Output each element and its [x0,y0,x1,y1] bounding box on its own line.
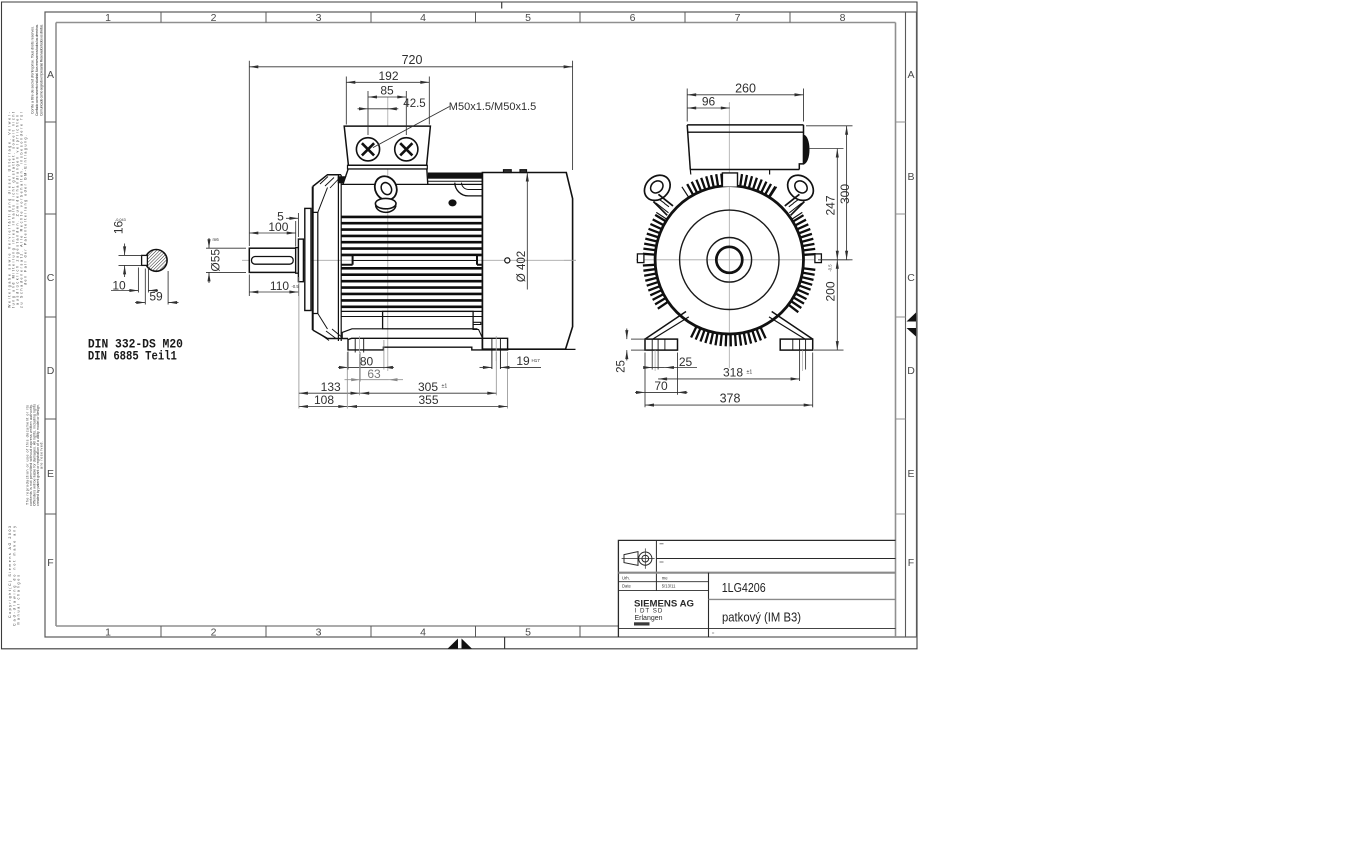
svg-text:59: 59 [149,289,163,303]
svg-text:70: 70 [654,379,668,393]
svg-text:16: 16 [111,221,125,235]
svg-text:300: 300 [838,184,852,204]
svg-text:1: 1 [105,12,111,24]
svg-text:DIN 6885 Teil1: DIN 6885 Teil1 [88,348,177,363]
svg-text:720: 720 [402,53,423,67]
svg-text:1: 1 [105,627,111,639]
svg-text:m6: m6 [213,237,220,242]
svg-text:Urh.: Urh. [622,575,630,580]
svg-text:Date: Date [622,584,632,589]
svg-text:-0.5: -0.5 [827,264,832,272]
svg-text:A: A [47,69,54,81]
svg-text:C: C [47,272,55,284]
svg-text:42.5: 42.5 [403,98,425,110]
svg-text:4: 4 [420,627,426,639]
svg-text:19: 19 [516,354,530,368]
svg-text:±1: ±1 [442,384,448,390]
svg-text:96: 96 [702,95,716,109]
svg-text:H17: H17 [532,358,541,363]
svg-text:25: 25 [679,355,693,369]
svg-text:133: 133 [321,380,341,394]
svg-text:3: 3 [316,12,322,24]
svg-text:Ø 402: Ø 402 [516,251,528,282]
svg-text:F: F [908,557,914,569]
svg-text:4: 4 [420,12,426,24]
svg-text:±1: ±1 [747,369,753,375]
svg-text:D: D [907,365,915,377]
svg-text:D: D [47,365,55,377]
svg-text:are reserved.: are reserved. [40,441,44,469]
svg-text:F: F [47,557,53,569]
svg-text:260: 260 [735,81,756,95]
svg-text:-0.5: -0.5 [292,284,300,289]
svg-text:Ø55: Ø55 [209,249,223,272]
svg-text:Erlangen: Erlangen [635,615,663,622]
svg-text:247: 247 [823,195,837,215]
svg-text:5: 5 [525,12,531,24]
svg-text:B: B [907,171,914,183]
svg-text:305: 305 [418,380,438,394]
svg-text:me: me [662,575,668,580]
svg-text:-0.043: -0.043 [115,218,126,222]
svg-text:25: 25 [616,360,628,373]
svg-text:8: 8 [840,12,846,24]
svg-text:I DT SD: I DT SD [635,608,664,615]
svg-text:1LG4206: 1LG4206 [722,581,766,595]
svg-text:200: 200 [823,281,837,301]
svg-text:7: 7 [735,12,741,24]
svg-text:378: 378 [720,392,741,406]
svg-text:M50x1.5/M50x1.5: M50x1.5/M50x1.5 [449,101,536,113]
svg-text:E: E [907,468,914,480]
svg-text:B: B [47,171,54,183]
svg-text:Confie a titre de secret d'ent: Confie a titre de secret d'entreprise. T… [31,26,35,114]
svg-text:Comunicado como segredo empres: Comunicado como segredo empresarial. Res… [40,24,44,116]
svg-text:355: 355 [418,393,438,407]
svg-text:5: 5 [525,627,531,639]
svg-text:=: = [712,630,715,635]
svg-text:3: 3 [316,627,322,639]
svg-text:110: 110 [270,279,289,293]
svg-text:2: 2 [211,627,217,639]
svg-text:85: 85 [380,84,394,98]
svg-text:A: A [907,69,914,81]
svg-text:100: 100 [268,220,288,234]
svg-text:108: 108 [314,393,334,407]
svg-text:E: E [47,468,54,480]
svg-text:5/13/11: 5/13/11 [662,584,676,589]
svg-text:6: 6 [630,12,636,24]
svg-text:patkový (IM B3): patkový (IM B3) [722,610,801,624]
svg-text:Confiado como secreto industri: Confiado como secreto industrial. Nos re… [35,24,39,116]
svg-text:2: 2 [211,12,217,24]
svg-text:63: 63 [367,367,381,381]
svg-text:318: 318 [723,366,743,380]
svg-text:C: C [907,272,915,284]
svg-text:192: 192 [378,69,398,83]
